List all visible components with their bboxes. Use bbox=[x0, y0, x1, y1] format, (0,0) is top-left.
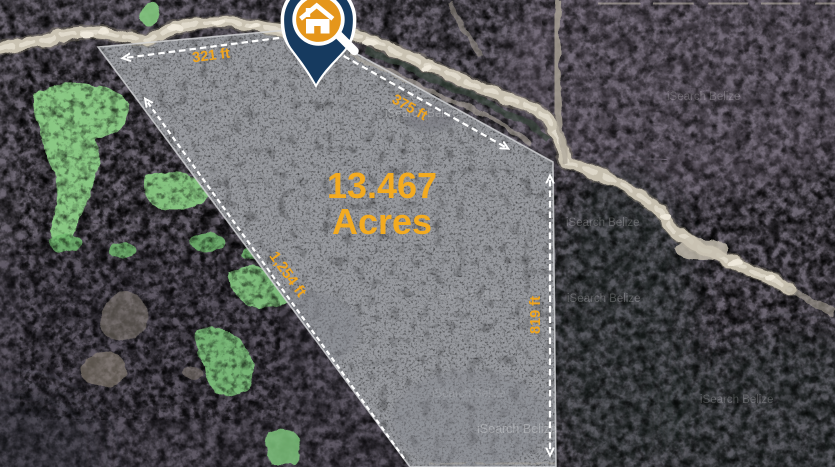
svg-text:iSearch Belize: iSearch Belize bbox=[567, 293, 641, 305]
svg-text:iSearch Belize: iSearch Belize bbox=[667, 91, 741, 103]
svg-text:Acres: Acres bbox=[332, 201, 432, 242]
svg-text:iSearch Belize: iSearch Belize bbox=[477, 422, 557, 436]
svg-text:iSearch Belize: iSearch Belize bbox=[432, 388, 506, 400]
svg-text:iSearch Belize: iSearch Belize bbox=[700, 394, 774, 406]
svg-text:13.467: 13.467 bbox=[327, 165, 437, 206]
svg-text:iSearch Belize: iSearch Belize bbox=[428, 290, 502, 302]
svg-text:819 ft: 819 ft bbox=[528, 296, 544, 334]
svg-text:iSearch Belize: iSearch Belize bbox=[566, 217, 640, 229]
